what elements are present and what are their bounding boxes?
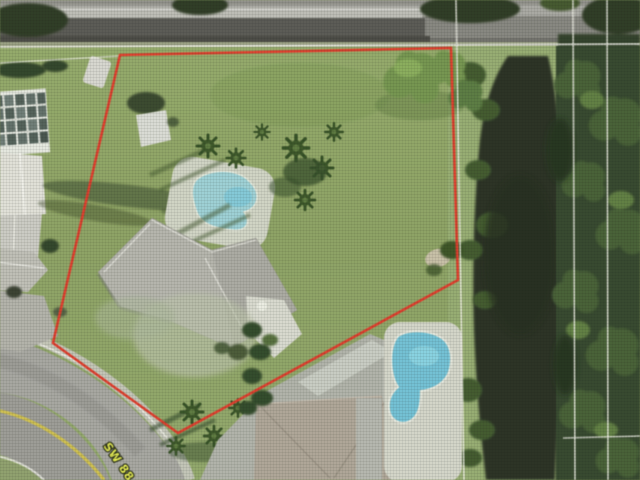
highway-top xyxy=(0,0,640,48)
aerial-map-image[interactable]: SW 88 xyxy=(0,0,640,480)
screened-enclosure xyxy=(0,88,50,156)
canal-and-tree-line xyxy=(448,46,640,480)
